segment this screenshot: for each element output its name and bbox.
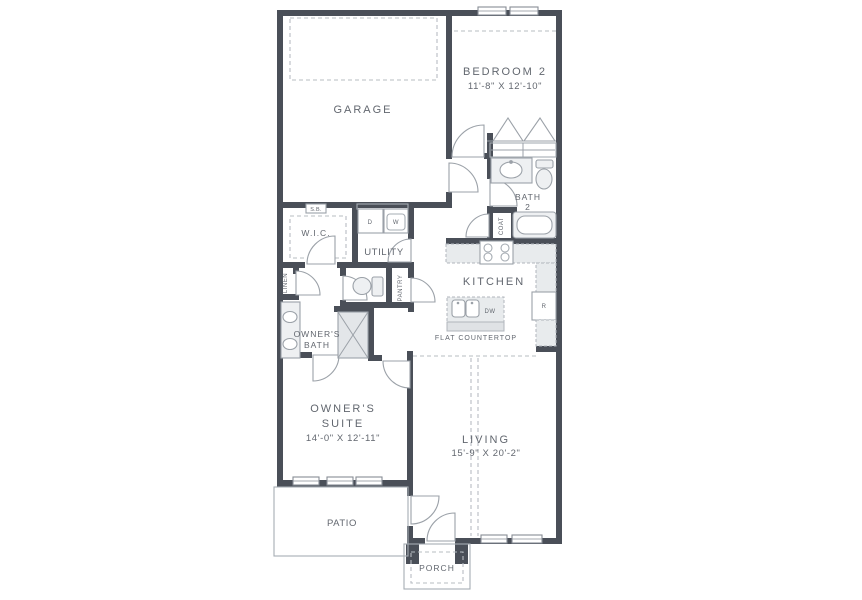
bedroom2-door: [452, 125, 484, 157]
wic-door: [307, 236, 335, 264]
owners-sink-1: [283, 312, 297, 323]
bath2-toilet-bowl: [536, 169, 552, 189]
pantry-label: PANTRY: [398, 275, 404, 302]
owners-toilet-tank: [372, 277, 383, 296]
owners-suite-door: [383, 361, 410, 388]
living-window: [481, 535, 507, 543]
owners-suite-window: [293, 477, 319, 485]
owners-bath-label-1: OWNER'S: [294, 329, 341, 339]
dishwasher-label: DW: [485, 309, 496, 315]
living-dims: 15'-9" X 20'-2": [451, 448, 520, 459]
owners-suite-label-1: OWNER'S: [310, 403, 376, 415]
garage-label: GARAGE: [333, 104, 392, 116]
bedroom2-closet-bifold-right: [524, 118, 555, 141]
linen-label: LINEN: [283, 273, 289, 293]
flat-countertop-label: FLAT COUNTERTOP: [435, 335, 517, 342]
refrigerator-label: R: [542, 304, 547, 310]
patio-label: PATIO: [327, 518, 357, 529]
washer-label: W: [393, 220, 399, 226]
bath2-label: BATH: [515, 192, 541, 202]
sb-label: S.B.: [310, 207, 322, 213]
bath2-toilet-tank: [536, 160, 553, 168]
garage-entry-door: [449, 163, 478, 192]
coat-closet-door: [466, 214, 489, 237]
bedroom2-closet-bifold-left: [493, 118, 523, 141]
garage-door-dashed-area: [290, 18, 437, 80]
owners-suite-label-2: SUITE: [322, 418, 364, 430]
porch-label: PORCH: [419, 563, 455, 573]
utility-label: UTILITY: [364, 247, 404, 258]
owners-bath-door: [313, 355, 339, 381]
floorplan-page: GARAGE BEDROOM 2 11'-8" X 12'-10" BATH 2…: [0, 0, 862, 600]
bedroom2-dims: 11'-8" X 12'-10": [468, 81, 542, 92]
kitchen-label: KITCHEN: [463, 276, 525, 288]
island-faucet: [457, 302, 460, 305]
stove: [480, 241, 513, 264]
owners-bath-label-2: BATH: [304, 340, 330, 350]
owners-sink-2: [283, 339, 297, 350]
front-door: [427, 513, 455, 541]
bath2-number: 2: [525, 202, 531, 212]
dryer-label: D: [368, 220, 373, 226]
kitchen-cabinet-lower: [536, 320, 556, 346]
bathtub-basin: [517, 216, 552, 234]
bedroom2-window: [478, 7, 506, 15]
coat-label: COAT: [499, 217, 505, 235]
owners-toilet-bowl: [353, 278, 371, 295]
kitchen-hall-door: [411, 278, 435, 302]
bedroom2-window: [510, 7, 538, 15]
living-window: [512, 535, 542, 543]
floorplan-svg: GARAGE BEDROOM 2 11'-8" X 12'-10" BATH 2…: [0, 0, 862, 600]
owners-suite-window: [356, 477, 382, 485]
island-flat-countertop-bar: [447, 322, 504, 331]
island-faucet: [471, 302, 474, 305]
bedroom2-label: BEDROOM 2: [463, 66, 547, 78]
patio-door: [411, 496, 439, 524]
living-label: LIVING: [462, 434, 510, 446]
owners-suite-dims: 14'-0" X 12'-11": [306, 433, 380, 444]
bath2-faucet: [510, 161, 513, 164]
owners-suite-window: [327, 477, 353, 485]
kitchen-counter-right: [536, 263, 556, 293]
bath2-sink: [500, 162, 522, 178]
wic-label: W.I.C.: [301, 228, 330, 238]
linen-door: [296, 271, 320, 295]
